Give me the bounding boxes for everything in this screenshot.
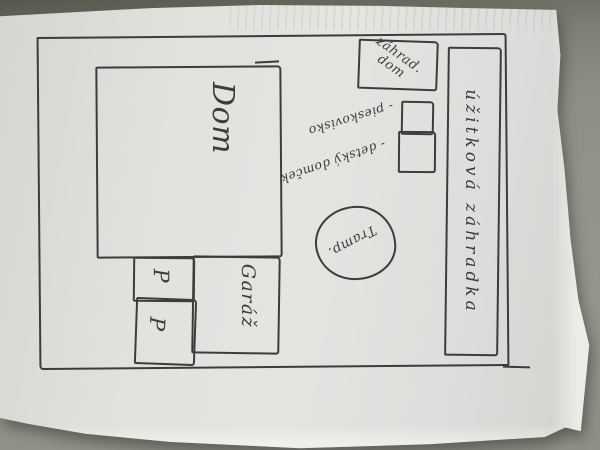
parking-label-lower: P <box>146 316 169 332</box>
utility-garden-label: úžitková záhradka <box>461 89 479 314</box>
garage-label: Garáž <box>237 264 257 328</box>
play-house-rect <box>398 131 436 173</box>
paper-texture <box>230 4 560 30</box>
photo-of-sketch: Dom P P Garáž záhrad. dom - pieskovisko … <box>0 0 600 450</box>
torn-edge-right <box>552 8 590 432</box>
paper-shadow: Dom P P Garáž záhrad. dom - pieskovisko … <box>0 0 600 450</box>
house-label: Dom <box>206 82 238 154</box>
parking-label-upper: P <box>150 268 173 283</box>
paper-sheet: Dom P P Garáž záhrad. dom - pieskovisko … <box>0 0 600 450</box>
house-rect <box>95 65 282 258</box>
sketch-stroke-overshoot <box>503 366 530 369</box>
torn-edge-bottom <box>20 424 580 448</box>
